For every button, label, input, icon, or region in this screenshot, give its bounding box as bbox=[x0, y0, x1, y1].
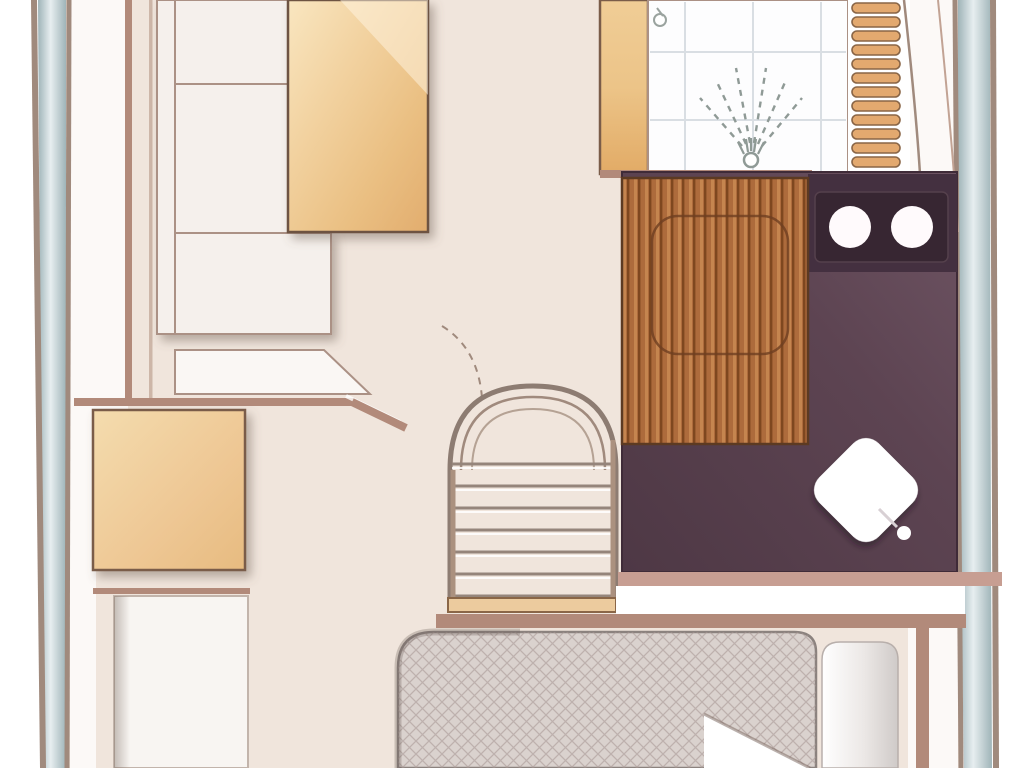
bed-side-wall bbox=[916, 628, 929, 768]
toilet-flush-button bbox=[897, 526, 911, 540]
ladder-rung bbox=[852, 87, 900, 97]
wet-locker-cabinet bbox=[600, 0, 648, 174]
port-side-margin bbox=[70, 0, 128, 410]
berth-edge-shadow bbox=[114, 596, 130, 768]
bed-bulkhead-wall bbox=[436, 614, 966, 628]
stair-threshold bbox=[448, 598, 616, 612]
ladder-rung bbox=[852, 143, 900, 153]
ladder-rung bbox=[852, 59, 900, 69]
ladder-rung bbox=[852, 73, 900, 83]
bathroom bbox=[618, 172, 1002, 586]
ladder-rung bbox=[852, 3, 900, 13]
teak-shower-grate bbox=[622, 178, 808, 444]
cabin-divider-line bbox=[93, 588, 250, 594]
bathroom-aft-wall bbox=[618, 572, 1002, 586]
ladder-rung bbox=[852, 31, 900, 41]
hull-starboard-outer-line bbox=[993, 0, 996, 768]
yacht-floor-plan bbox=[0, 0, 1024, 768]
saloon-inner-wall bbox=[125, 0, 132, 406]
lower-cabin bbox=[93, 410, 250, 768]
ladder-rung bbox=[852, 17, 900, 27]
sink-right bbox=[891, 206, 933, 248]
floor-plan-image bbox=[0, 0, 1024, 768]
saloon-aft-wall bbox=[74, 398, 354, 406]
ladder-rung bbox=[852, 101, 900, 111]
ladder-rung bbox=[852, 115, 900, 125]
ladder-rung bbox=[852, 157, 900, 167]
hull-port-inner-line bbox=[67, 0, 69, 768]
dinette-table bbox=[288, 0, 428, 232]
duvet-roll bbox=[822, 642, 898, 768]
double-berth bbox=[398, 632, 898, 768]
ladder-rung bbox=[852, 129, 900, 139]
sink-left bbox=[829, 206, 871, 248]
wood-cabinet bbox=[93, 410, 245, 570]
sofa-back-line bbox=[149, 0, 153, 400]
single-berth bbox=[114, 596, 248, 768]
walkway bbox=[616, 586, 965, 614]
hull-starboard bbox=[955, 0, 996, 768]
hull-port bbox=[34, 0, 69, 768]
ladder-rung bbox=[852, 45, 900, 55]
hull-starboard-rubrail bbox=[958, 0, 992, 768]
